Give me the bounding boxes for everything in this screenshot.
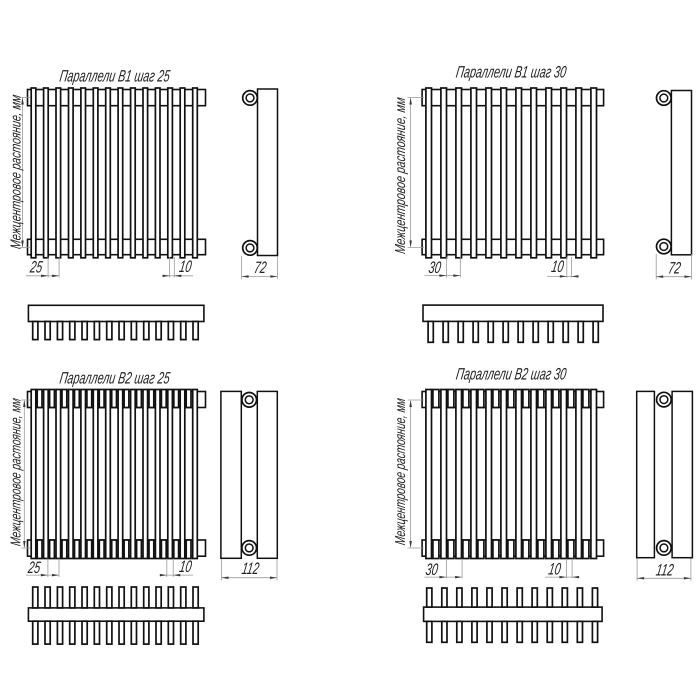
svg-text:112: 112 xyxy=(241,559,261,578)
svg-text:Параллели В2 шаг 30: Параллели В2 шаг 30 xyxy=(455,364,568,383)
svg-text:Межцентровое растояние, мм: Межцентровое растояние, мм xyxy=(391,96,408,255)
svg-text:Межцентровое растояние, мм: Межцентровое растояние, мм xyxy=(392,397,408,546)
svg-text:112: 112 xyxy=(655,560,675,579)
svg-text:Межцентровое растояние, мм: Межцентровое растояние, мм xyxy=(8,397,24,547)
svg-text:Межцентровое растояние, мм: Межцентровое растояние, мм xyxy=(7,93,24,250)
svg-text:Параллели В2 шаг 25: Параллели В2 шаг 25 xyxy=(58,368,171,387)
svg-text:Параллели В1 шаг 25: Параллели В1 шаг 25 xyxy=(58,66,171,85)
svg-text:Параллели В1 шаг 30: Параллели В1 шаг 30 xyxy=(455,62,568,81)
